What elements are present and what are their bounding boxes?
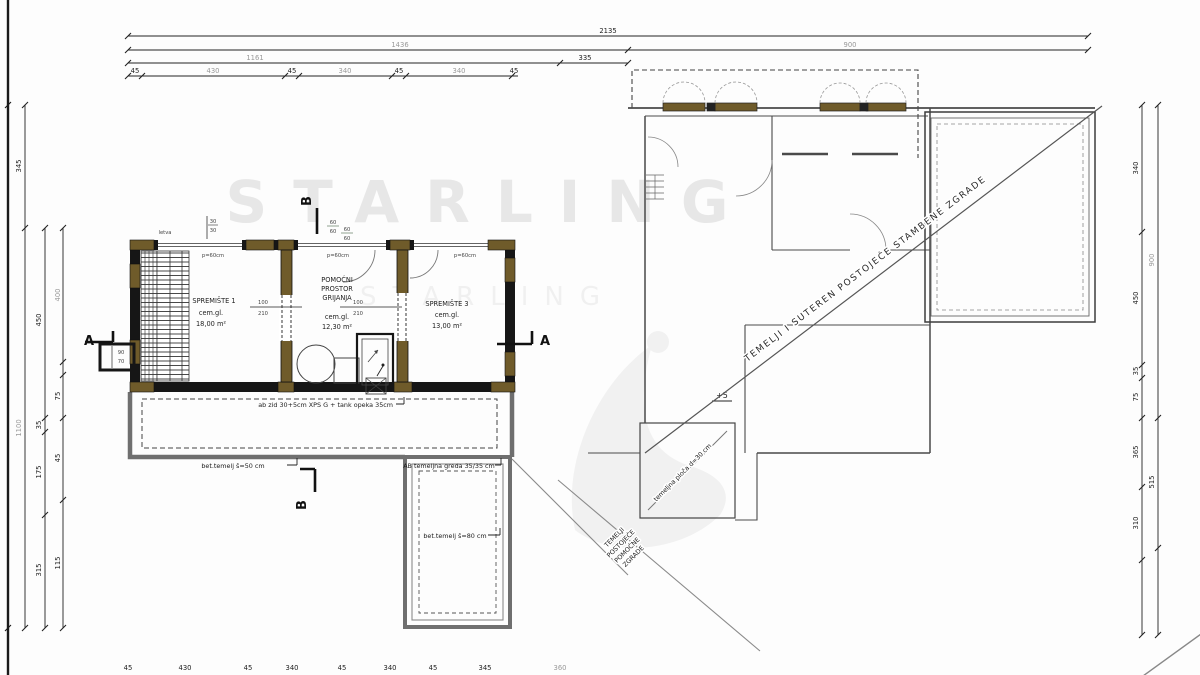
entry-dim-bottom: 70 xyxy=(118,359,125,365)
dim-bottom: 45 xyxy=(124,664,133,672)
dim-right: 365 xyxy=(1132,446,1140,459)
chimney-num: 30 xyxy=(210,219,217,225)
dim-left: 1100 xyxy=(15,419,23,436)
bottom-dimension-row: 45 430 45 340 45 340 45 345 360 xyxy=(124,664,567,672)
dim-top-900: 900 xyxy=(844,41,857,49)
dim-bottom: 340 xyxy=(286,664,299,672)
section-letter: B xyxy=(300,196,315,206)
chimney-den: 30 xyxy=(210,228,217,234)
dim-left: 175 xyxy=(35,466,43,479)
note-grade: AB temeljna greda 35/35 cm xyxy=(403,462,495,470)
dim-right: 35 xyxy=(1132,367,1140,376)
dim-bottom: 340 xyxy=(384,664,397,672)
dim-left: 75 xyxy=(54,392,62,401)
watermark: STARLING STARLING xyxy=(225,168,754,548)
dim-right: 310 xyxy=(1132,517,1140,530)
dim-right: 515 xyxy=(1148,476,1156,489)
garage xyxy=(925,112,1095,322)
dim-bottom: 45 xyxy=(244,664,253,672)
vent-den: 60 xyxy=(330,229,337,235)
room2-floor: cem.gl. xyxy=(325,313,349,321)
door-height: 210 xyxy=(353,311,363,317)
dim-bottom: 45 xyxy=(338,664,347,672)
parapet-label: p=60cm xyxy=(202,253,224,259)
dim-left: 400 xyxy=(54,289,62,302)
entry-dim-top: 90 xyxy=(118,350,125,356)
foundation-outline xyxy=(130,392,512,627)
dim-bottom: 360 xyxy=(554,664,567,672)
entry-box: 90 70 xyxy=(100,344,134,370)
corner-diagonal xyxy=(1143,634,1200,675)
door-arcs xyxy=(343,250,438,282)
letva-label: letva xyxy=(159,230,172,236)
room3-name: SPREMIŠTE 3 xyxy=(425,299,468,308)
tank-circle xyxy=(297,345,335,383)
room2-name3: GRIJANJA xyxy=(322,294,352,302)
main-diagonal: TEMELJI I SUTEREN POSTOJEĆE STAMBENE ZGR… xyxy=(645,106,1102,453)
dim-right: 340 xyxy=(1132,162,1140,175)
dim-top-1436: 1436 xyxy=(391,41,408,49)
dim-left: 115 xyxy=(54,557,62,570)
dim-left: 35 xyxy=(35,421,43,430)
section-letter: A xyxy=(540,334,550,349)
room3-area: 13,00 m² xyxy=(432,322,462,330)
dim-top-335: 335 xyxy=(579,54,592,62)
dim-left: 450 xyxy=(35,314,43,327)
parapet-label: p=60cm xyxy=(327,253,349,259)
dim-left: 45 xyxy=(54,454,62,463)
stair-hatch xyxy=(141,251,189,381)
house-window-sills xyxy=(663,103,906,111)
dim-seg: 340 xyxy=(453,67,466,75)
dim-right: 450 xyxy=(1132,292,1140,305)
equipment-square xyxy=(334,358,359,383)
dim-top-1161: 1161 xyxy=(246,54,263,62)
room1-area: 18,00 m² xyxy=(196,320,226,328)
parapet-label: p=60cm xyxy=(454,253,476,259)
note-strip80: bet.temelj š=80 cm xyxy=(423,532,486,540)
dim-right: 75 xyxy=(1132,393,1140,402)
dim-bottom: 345 xyxy=(479,664,492,672)
door-dim-1: 100 210 xyxy=(250,300,302,317)
top-dimension-chain: 2135 1436 900 1161 335 45 430 45 340 45 … xyxy=(125,27,1091,79)
note-wall: ab zid 30+5cm XPS G + tank opeka 35cm xyxy=(258,401,393,409)
level-mark: +5 xyxy=(716,391,728,400)
section-letter: B xyxy=(295,500,310,510)
main-diagonal-label: TEMELJI I SUTEREN POSTOJEĆE STAMBENE ZGR… xyxy=(741,173,988,365)
section-b-bottom: B xyxy=(295,469,315,510)
floor-plan-canvas: STARLING STARLING 2135 1436 900 1161 335… xyxy=(0,0,1200,675)
door-height: 210 xyxy=(258,311,268,317)
room2-name2: PROSTOR xyxy=(321,285,353,293)
house-window-arcs xyxy=(663,82,906,103)
dim-top-segments: 45 430 45 340 45 340 45 xyxy=(131,67,519,75)
dim-seg: 430 xyxy=(207,67,220,75)
dim-bottom: 430 xyxy=(179,664,192,672)
dim-left: 345 xyxy=(15,160,23,173)
dim-seg: 45 xyxy=(131,67,140,75)
left-dimension-chain: 345 1100 450 35 175 315 400 75 45 115 xyxy=(15,102,66,631)
windows xyxy=(158,240,488,250)
dim-bottom: 45 xyxy=(429,664,438,672)
dim-left: 315 xyxy=(35,564,43,577)
vent-num: 60 xyxy=(344,227,351,233)
dim-seg: 340 xyxy=(339,67,352,75)
room2-area: 12,30 m² xyxy=(322,323,352,331)
dim-seg: 45 xyxy=(288,67,297,75)
chimney-dim: 30 30 xyxy=(207,216,218,239)
door-width: 100 xyxy=(353,300,363,306)
door-width: 100 xyxy=(258,300,268,306)
dim-seg: 45 xyxy=(510,67,519,75)
section-a-right: A xyxy=(497,331,550,349)
room3-floor: cem.gl. xyxy=(435,311,459,319)
watermark-bird-head xyxy=(647,331,669,353)
room2-name1: POMOĆNI xyxy=(321,275,353,284)
note-strip50: bet.temelj š=50 cm xyxy=(201,462,264,470)
dim-right: 900 xyxy=(1148,254,1156,267)
floor-plan-drawing: STARLING STARLING 2135 1436 900 1161 335… xyxy=(0,0,1200,675)
dim-seg: 45 xyxy=(395,67,404,75)
terrace-dashed-outline xyxy=(632,70,918,158)
right-dimension-chain: 340 450 35 75 365 310 900 515 xyxy=(1132,102,1161,638)
sheet-frame xyxy=(5,0,11,675)
foundation-notes: ab zid 30+5cm XPS G + tank opeka 35cm be… xyxy=(201,397,501,540)
room1-floor: cem.gl. xyxy=(199,309,223,317)
vent-den: 60 xyxy=(344,236,351,242)
vent-num: 60 xyxy=(330,220,337,226)
dim-top-total: 2135 xyxy=(599,27,616,35)
room1-name: SPREMIŠTE 1 xyxy=(192,296,235,305)
